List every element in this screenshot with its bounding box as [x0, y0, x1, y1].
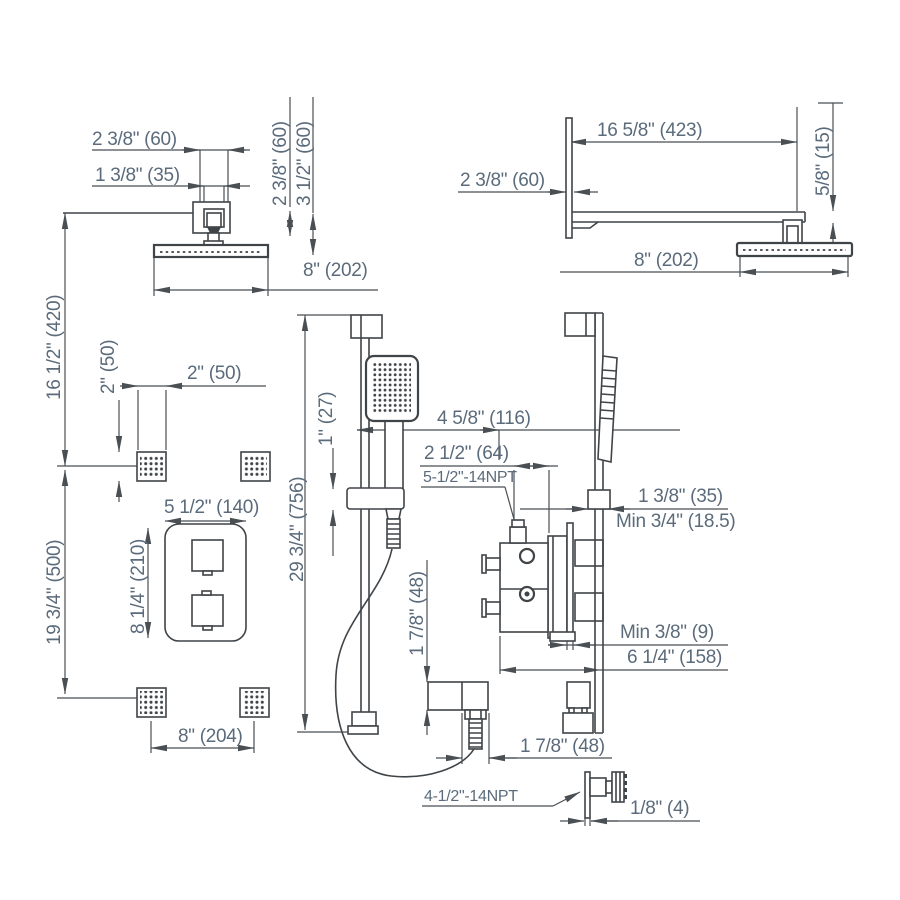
dim-jet-height: 2" (50)	[98, 340, 119, 394]
wall-elbow-front	[428, 682, 488, 749]
dim-elbow-width: 1 7/8" (48)	[520, 736, 605, 757]
dim-ceiling-head-width: 8" (202)	[303, 260, 368, 281]
valve-trim-front	[165, 524, 246, 641]
dim-handshower-offset: 4 5/8" (116)	[437, 408, 531, 429]
wall-layout-dimensions: 16 1/2" (420) 19 3/4" (500)	[44, 213, 137, 698]
dim-plate-width: 5 1/2" (140)	[164, 497, 259, 518]
dim-min-plate-depth: Min 3/8" (9)	[620, 622, 714, 643]
dim-slider-depth: 1 3/8" (35)	[638, 486, 723, 507]
valve-side-view	[482, 520, 603, 641]
dim-outlet-offset: 2 1/2" (64)	[424, 443, 509, 464]
dim-arm-head-width: 8" (202)	[634, 250, 699, 271]
ceiling-shower-head-front	[63, 202, 268, 257]
dim-ceiling-drop: 3 1/2" (60)	[294, 121, 315, 206]
dim-ceiling-bracket-width: 1 3/8" (35)	[95, 165, 180, 186]
body-jet-side-dims: 4-1/2"-14NPT 1/8" (4)	[422, 788, 700, 826]
dim-ceiling-box-height: 2 3/8" (60)	[270, 121, 291, 206]
dim-jet-width: 2" (50)	[187, 363, 241, 384]
dim-elbow-height: 1 7/8" (48)	[407, 571, 428, 656]
label-outlet-thread: 5-1/2"-14NPT	[423, 469, 517, 486]
ceiling-shower-head-front-dims: 2 3/8" (60) 1 3/8" (35) 2 3/8" (60) 3 1/…	[92, 97, 378, 296]
dim-head-to-jets: 16 1/2" (420)	[44, 295, 65, 400]
dim-glide-height: 1" (27)	[316, 392, 337, 446]
dim-arm-head-drop: 5/8" (15)	[813, 126, 834, 196]
dim-min-wall-depth: Min 3/4" (18.5)	[616, 511, 735, 532]
label-jet-thread: 4-1/2"-14NPT	[424, 788, 518, 805]
dim-bar-length: 29 3/4" (756)	[287, 477, 308, 582]
dim-arm-length: 16 5/8" (423)	[597, 120, 702, 141]
dim-flange-thickness: 1/8" (4)	[630, 798, 689, 819]
shower-system-dimension-drawing: 16 1/2" (420) 19 3/4" (500) 2 3/8" (60) …	[0, 0, 900, 900]
dim-arm-flange-depth: 2 3/8" (60)	[460, 170, 545, 191]
dim-jets-to-jets: 19 3/4" (500)	[44, 540, 65, 645]
dim-jet-spacing: 8" (204)	[178, 726, 243, 747]
body-jet-side-view	[585, 772, 627, 818]
dim-ceiling-box-width: 2 3/8" (60)	[92, 129, 177, 150]
dim-total-depth: 6 1/4" (158)	[627, 647, 722, 668]
dim-plate-height: 8 1/4" (210)	[128, 539, 149, 634]
